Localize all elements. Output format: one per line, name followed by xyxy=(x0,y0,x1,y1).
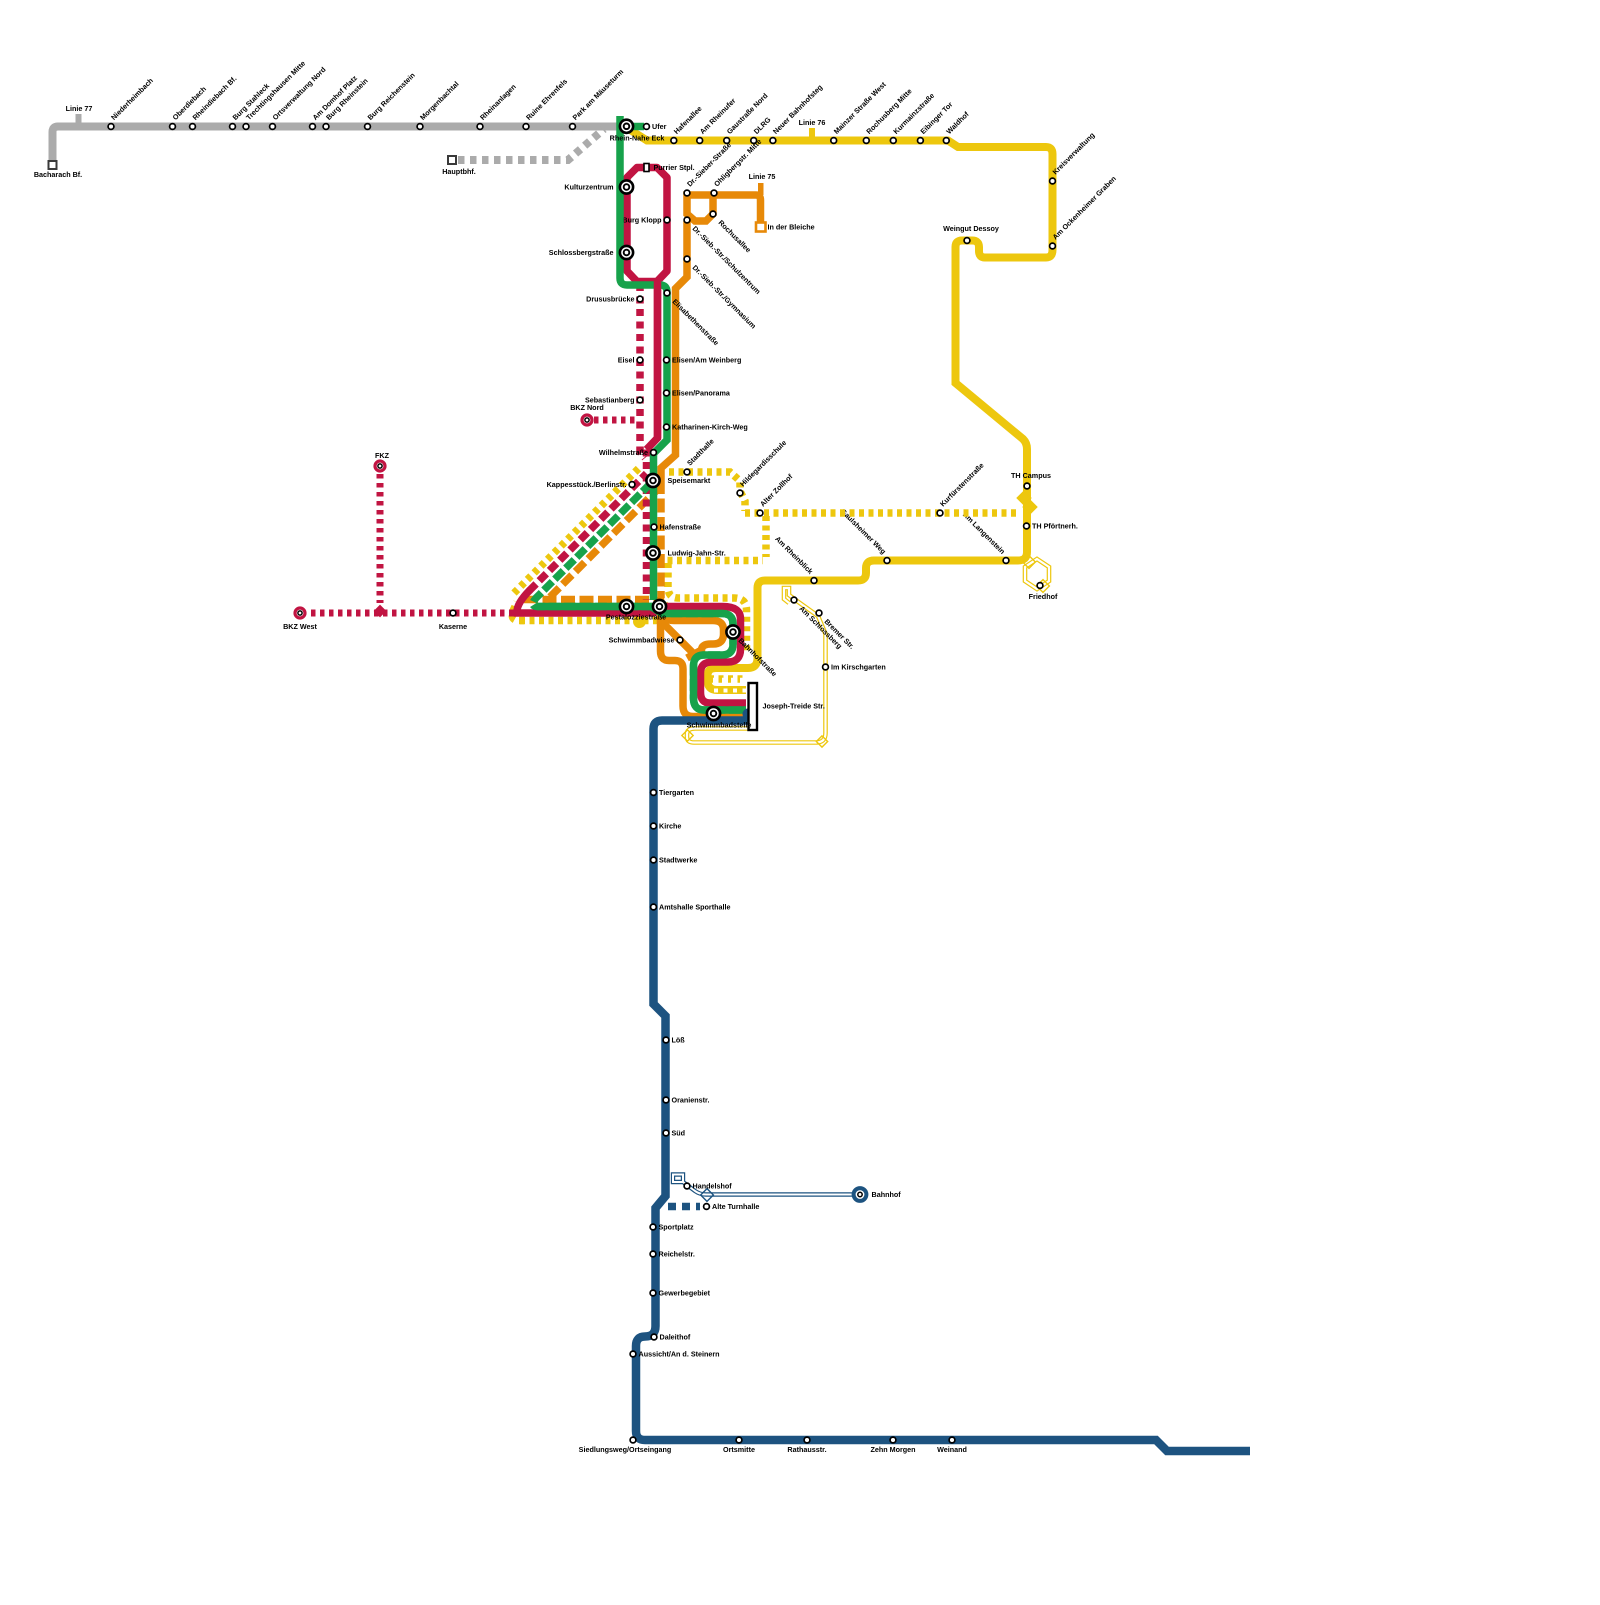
svg-text:Kaserne: Kaserne xyxy=(439,622,467,631)
svg-text:Joseph-Treide Str.: Joseph-Treide Str. xyxy=(763,702,825,711)
svg-text:Wilhelmstraße: Wilhelmstraße xyxy=(599,448,648,457)
svg-text:Sebastianberg: Sebastianberg xyxy=(585,396,635,405)
svg-text:Schwimmbadwiese: Schwimmbadwiese xyxy=(609,636,675,645)
svg-text:Rhein-Nahe Eck: Rhein-Nahe Eck xyxy=(610,134,665,143)
svg-text:Im Kirschgarten: Im Kirschgarten xyxy=(831,663,886,672)
svg-text:Löß: Löß xyxy=(672,1036,686,1045)
svg-text:In der Bleiche: In der Bleiche xyxy=(768,223,815,232)
svg-text:Handelshof: Handelshof xyxy=(693,1182,733,1191)
svg-text:FKZ: FKZ xyxy=(375,451,390,460)
svg-text:Siedlungsweg/Ortseingang: Siedlungsweg/Ortseingang xyxy=(579,1445,672,1454)
svg-text:Schlossbergstraße: Schlossbergstraße xyxy=(549,248,614,257)
svg-text:Speisemarkt: Speisemarkt xyxy=(668,476,711,485)
svg-text:Süd: Süd xyxy=(672,1129,686,1138)
svg-text:Kirche: Kirche xyxy=(659,822,681,831)
svg-text:Alte Turnhalle: Alte Turnhalle xyxy=(712,1202,759,1211)
svg-text:Schwimmbadstelle: Schwimmbadstelle xyxy=(687,721,752,730)
svg-text:Linie 76: Linie 76 xyxy=(799,118,826,127)
svg-text:Hauptbhf.: Hauptbhf. xyxy=(442,167,476,176)
svg-text:TH Pförtnerh.: TH Pförtnerh. xyxy=(1032,522,1078,531)
svg-text:Weingut Dessoy: Weingut Dessoy xyxy=(943,224,999,233)
svg-text:Rathausstr.: Rathausstr. xyxy=(787,1445,826,1454)
svg-text:Elisen/Am Weinberg: Elisen/Am Weinberg xyxy=(672,356,741,365)
svg-text:Linie 75: Linie 75 xyxy=(749,172,776,181)
svg-text:Daleithof: Daleithof xyxy=(660,1333,691,1342)
svg-text:Zehn Morgen: Zehn Morgen xyxy=(870,1445,915,1454)
svg-text:Hafenstraße: Hafenstraße xyxy=(660,523,702,532)
svg-text:Ufer: Ufer xyxy=(652,122,667,131)
svg-text:BKZ West: BKZ West xyxy=(283,622,317,631)
svg-text:TH Campus: TH Campus xyxy=(1011,471,1051,480)
svg-text:Amtshalle Sporthalle: Amtshalle Sporthalle xyxy=(659,903,731,912)
svg-text:Aussicht/An d. Steinern: Aussicht/An d. Steinern xyxy=(639,1350,720,1359)
svg-text:Ortsmitte: Ortsmitte xyxy=(723,1445,755,1454)
svg-text:Bacharach Bf.: Bacharach Bf. xyxy=(34,170,82,179)
svg-text:Sportplatz: Sportplatz xyxy=(659,1223,695,1232)
svg-text:Kulturzentrum: Kulturzentrum xyxy=(564,183,613,192)
svg-text:Burg Klopp: Burg Klopp xyxy=(622,216,662,225)
svg-text:Tiergarten: Tiergarten xyxy=(659,788,694,797)
svg-text:Weinand: Weinand xyxy=(937,1445,967,1454)
svg-text:Purrier Stpl.: Purrier Stpl. xyxy=(654,163,695,172)
svg-text:Kappesstück./Berlinstr.: Kappesstück./Berlinstr. xyxy=(547,480,627,489)
svg-text:Drususbrücke: Drususbrücke xyxy=(586,295,634,304)
svg-text:Bahnhof: Bahnhof xyxy=(872,1190,902,1199)
svg-text:Pestalozziestraße: Pestalozziestraße xyxy=(606,613,666,622)
svg-text:Oranienstr.: Oranienstr. xyxy=(672,1096,710,1105)
svg-text:Friedhof: Friedhof xyxy=(1029,592,1058,601)
svg-text:Katharinen-Kirch-Weg: Katharinen-Kirch-Weg xyxy=(672,423,748,432)
svg-text:Reichelstr.: Reichelstr. xyxy=(659,1250,695,1259)
svg-text:Elisen/Panorama: Elisen/Panorama xyxy=(672,389,731,398)
svg-text:Gewerbegebiet: Gewerbegebiet xyxy=(659,1289,711,1298)
svg-text:Stadtwerke: Stadtwerke xyxy=(659,856,697,865)
svg-text:Linie 77: Linie 77 xyxy=(66,104,93,113)
svg-text:Eisel: Eisel xyxy=(618,356,635,365)
svg-text:Ludwig-Jahn-Str.: Ludwig-Jahn-Str. xyxy=(668,549,726,558)
